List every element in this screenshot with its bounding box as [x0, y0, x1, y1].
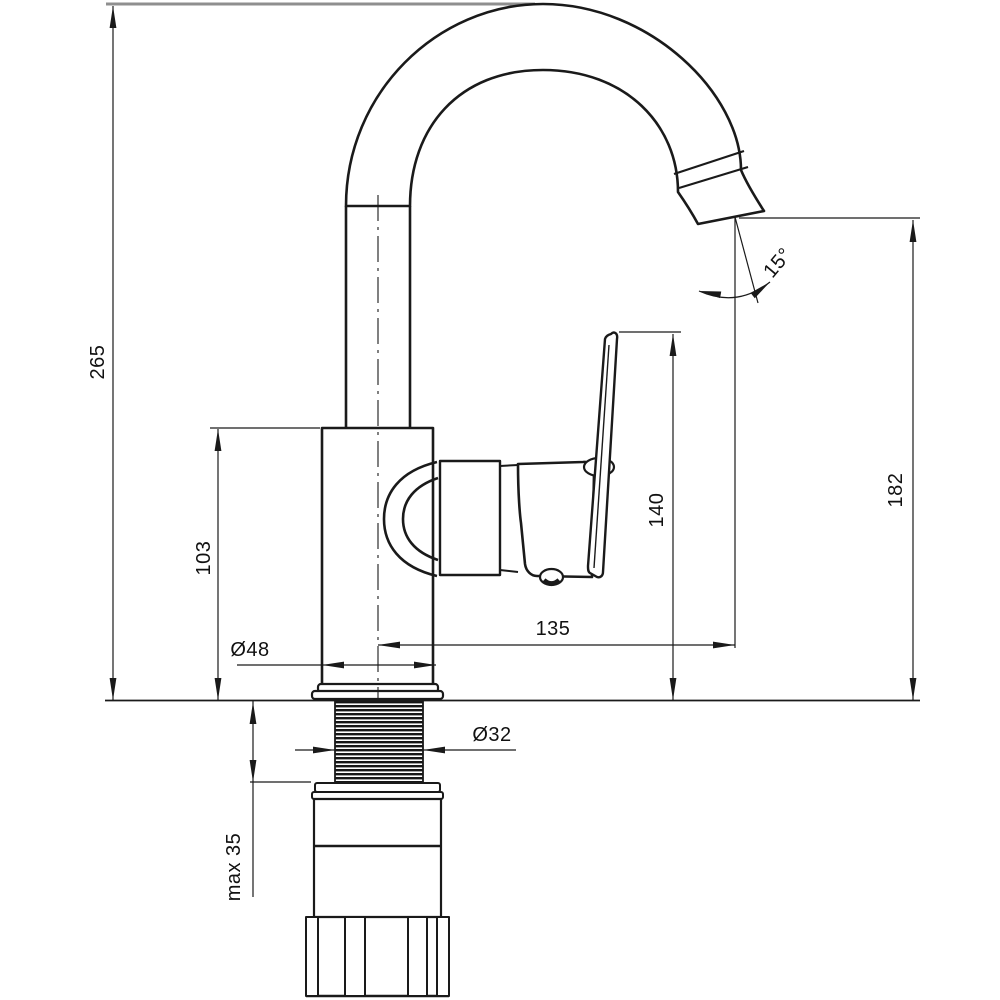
nut-rib-3 [408, 917, 427, 996]
outlet-angle-line [735, 217, 758, 303]
dimension-lines [113, 6, 913, 897]
mounting-washer-upper [315, 783, 440, 792]
arrow-182-bottom [910, 678, 917, 700]
faucet-technical-drawing [0, 0, 1000, 1000]
arrow-103-bottom [215, 678, 222, 700]
arrow-265-top [110, 6, 117, 28]
dim-label-total-height: 265 [88, 345, 108, 380]
nut-rib-2 [345, 917, 365, 996]
arrow-140-bottom [670, 678, 677, 700]
arrow-182-top [910, 220, 917, 242]
nut-rib-4 [437, 917, 449, 996]
dim-label-base-diameter: Ø48 [230, 640, 269, 660]
arrow-max35-bottom [250, 760, 257, 782]
arrow-135-right [713, 642, 735, 649]
extension-lines [105, 4, 920, 782]
cartridge-body [518, 462, 594, 577]
spout-gooseneck [346, 4, 764, 224]
handle-lever [588, 333, 617, 578]
collar-connector-top [500, 465, 518, 466]
arrow-140-top [670, 334, 677, 356]
arrow-d32-right [423, 747, 445, 754]
collar-connector-bottom [500, 570, 518, 572]
dim-label-shank-diameter: Ø32 [472, 725, 511, 745]
arrow-103-top [215, 429, 222, 451]
dim-label-max-thickness: max 35 [224, 833, 244, 902]
cartridge-collar [440, 461, 500, 575]
dimension-arrowheads [110, 6, 917, 782]
dim-label-handle-height: 140 [647, 493, 667, 528]
dim-label-spout-reach: 135 [536, 619, 571, 639]
technical-drawing-canvas: 265 103 max 35 140 182 135 Ø48 Ø32 15° [0, 0, 1000, 1000]
mounting-nut-body [314, 799, 441, 917]
faucet-outline [306, 4, 764, 996]
nut-rib-1 [306, 917, 318, 996]
threaded-shank [335, 701, 423, 783]
arrow-max35-top [250, 702, 257, 724]
dim-label-column-height: 103 [194, 541, 214, 576]
dim-label-outlet-height: 182 [886, 473, 906, 508]
arrow-angle-left [698, 288, 721, 299]
arrow-d32-left [313, 747, 335, 754]
arrow-265-bottom [110, 678, 117, 700]
